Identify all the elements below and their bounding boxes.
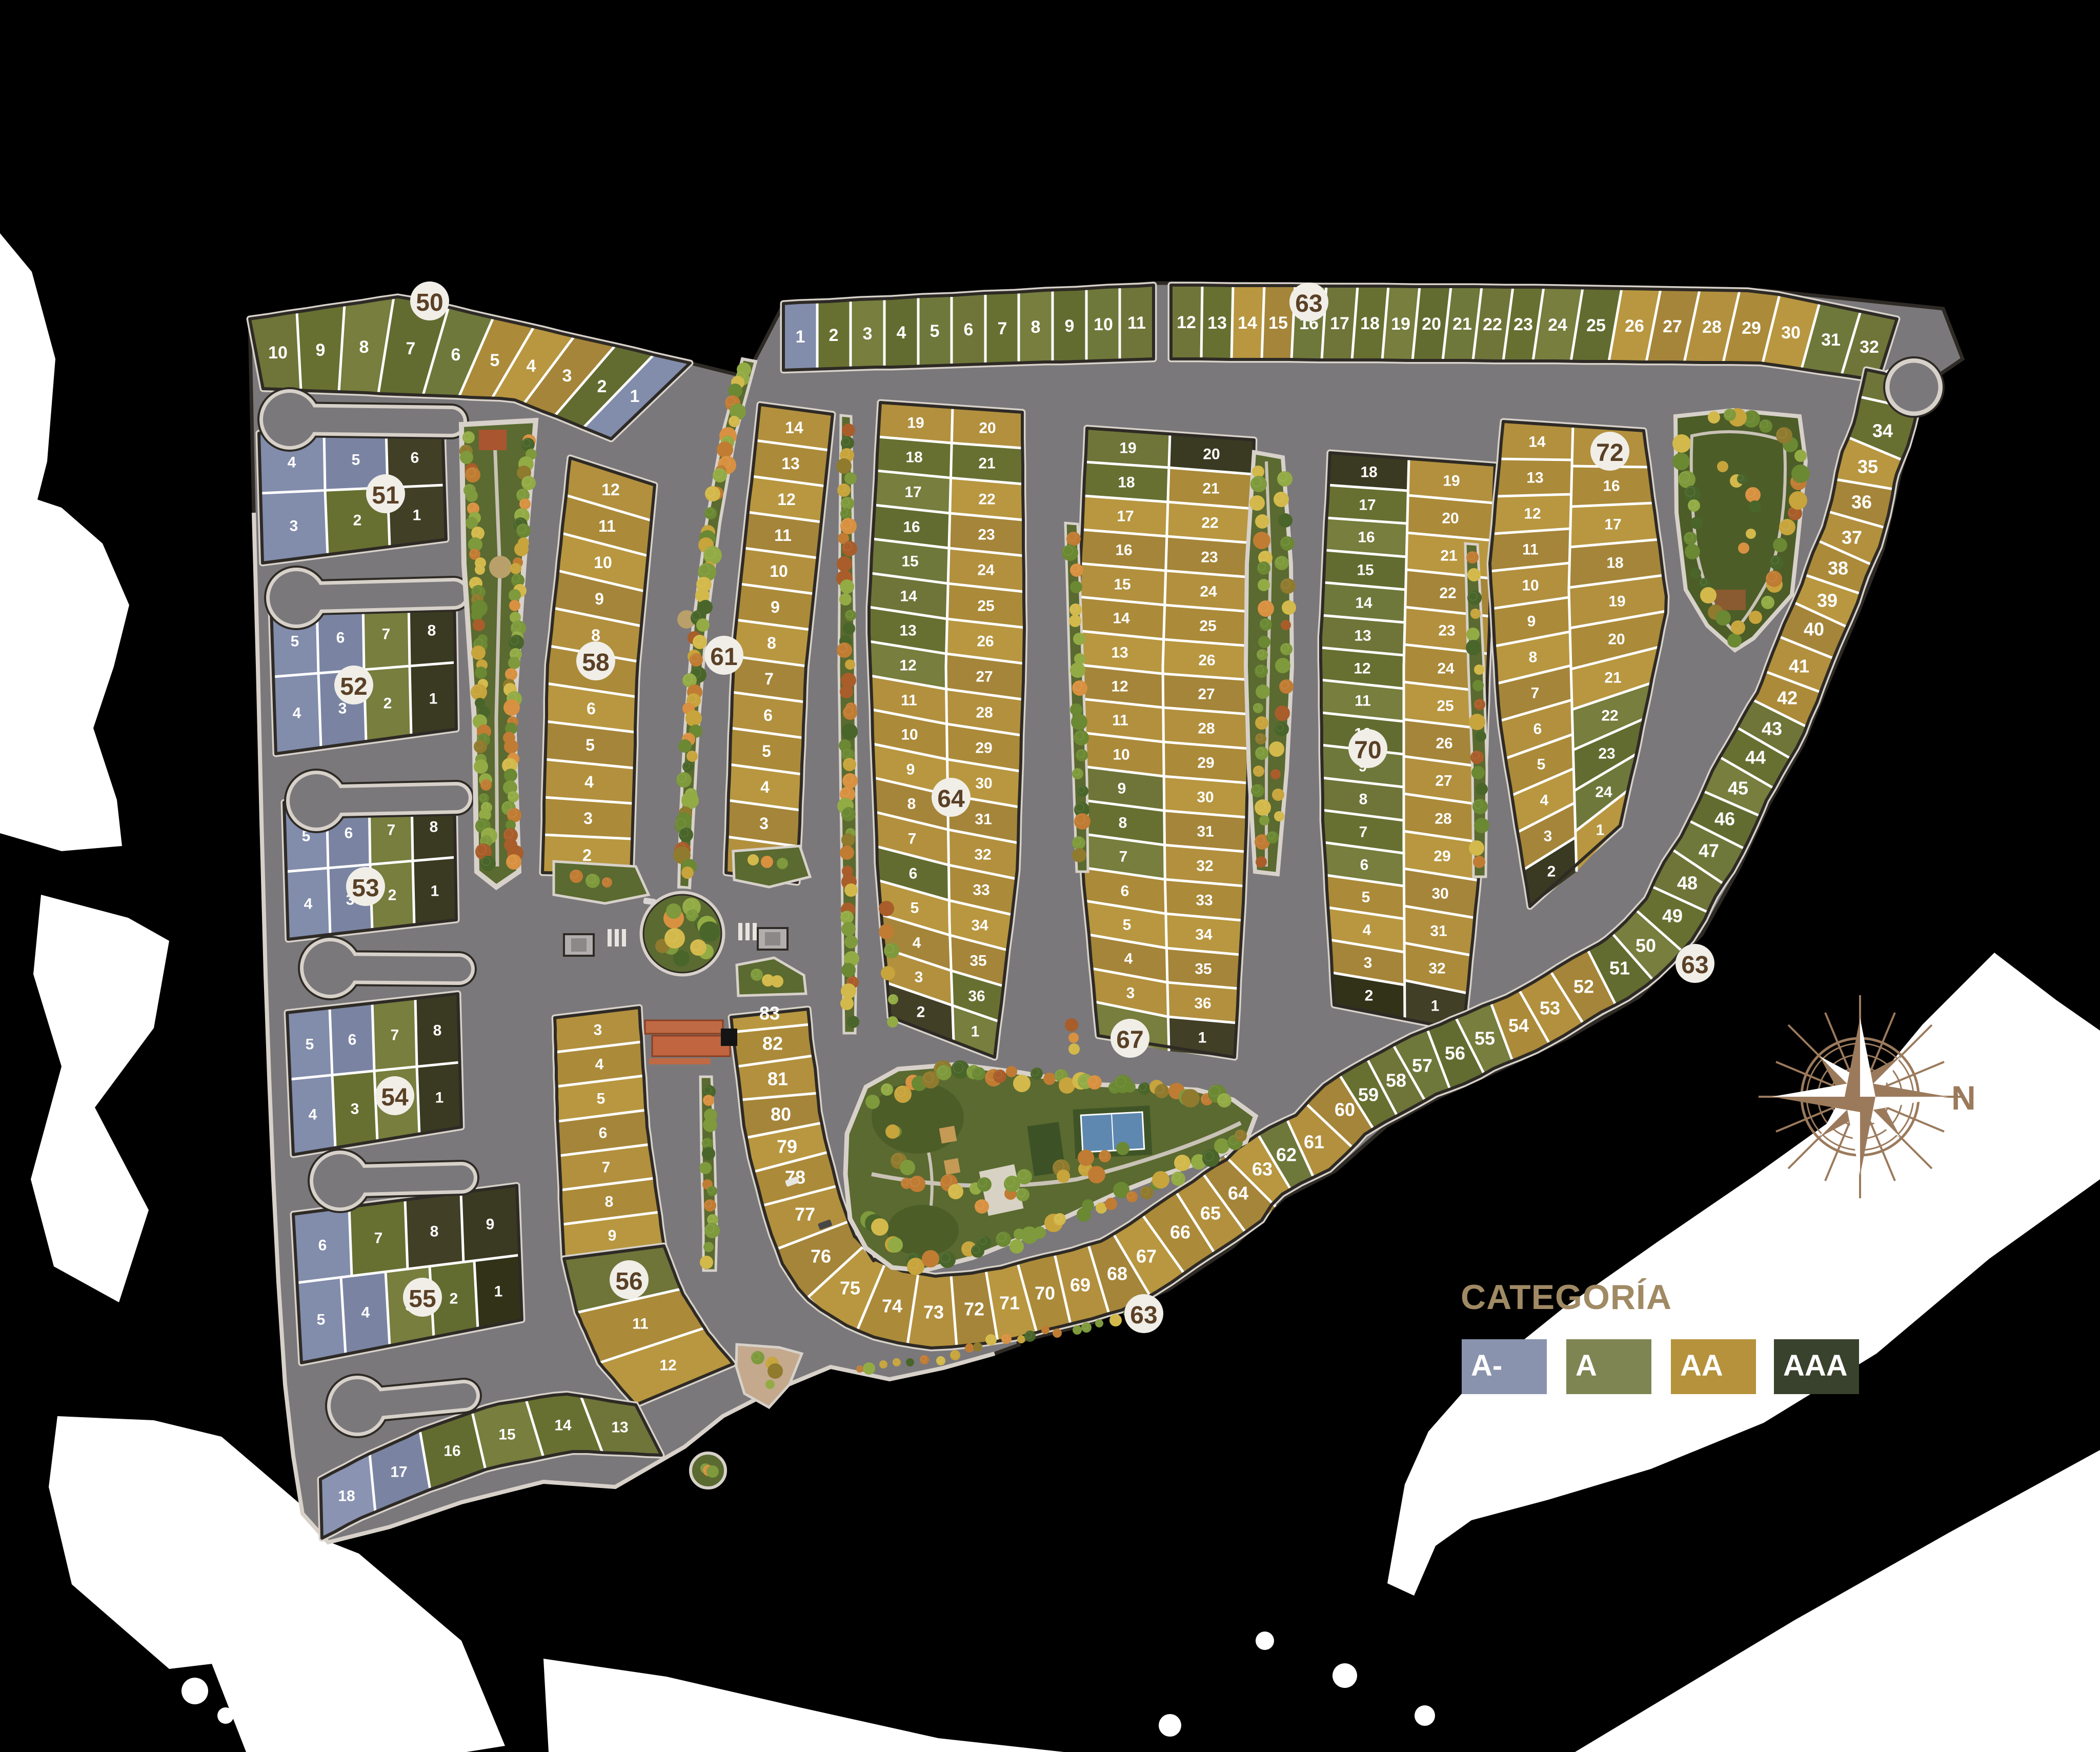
svg-text:6: 6 [587, 699, 596, 718]
svg-text:3: 3 [759, 814, 769, 833]
svg-text:5: 5 [585, 736, 595, 754]
svg-text:8: 8 [433, 1022, 442, 1039]
svg-text:29: 29 [1742, 318, 1761, 338]
svg-text:12: 12 [659, 1357, 676, 1374]
svg-text:9: 9 [1527, 613, 1536, 630]
svg-text:42: 42 [1777, 688, 1798, 709]
svg-text:N: N [1951, 1079, 1976, 1117]
svg-text:3: 3 [583, 809, 593, 828]
svg-text:22: 22 [978, 491, 995, 508]
svg-text:34: 34 [971, 917, 988, 934]
svg-text:36: 36 [968, 988, 985, 1005]
svg-text:15: 15 [901, 553, 918, 570]
svg-text:5: 5 [911, 900, 919, 917]
svg-text:16: 16 [1358, 529, 1375, 546]
svg-text:46: 46 [1714, 809, 1735, 830]
svg-text:3: 3 [338, 700, 347, 717]
svg-text:6: 6 [411, 450, 419, 467]
svg-text:64: 64 [1228, 1183, 1248, 1204]
svg-text:26: 26 [977, 633, 994, 650]
svg-text:21: 21 [1440, 548, 1457, 565]
svg-text:26: 26 [1198, 652, 1215, 669]
svg-text:3: 3 [1364, 955, 1372, 972]
svg-text:8: 8 [605, 1194, 614, 1211]
svg-text:22: 22 [1439, 585, 1456, 602]
svg-text:67: 67 [1116, 1026, 1143, 1054]
svg-text:29: 29 [1197, 755, 1214, 772]
svg-text:4: 4 [1124, 951, 1133, 968]
svg-text:11: 11 [632, 1316, 649, 1333]
svg-text:34: 34 [1872, 420, 1893, 441]
svg-text:14: 14 [1355, 595, 1372, 612]
svg-text:10: 10 [594, 553, 612, 572]
svg-text:1: 1 [429, 691, 438, 708]
svg-text:19: 19 [1443, 473, 1460, 490]
svg-text:63: 63 [1252, 1159, 1273, 1180]
svg-text:13: 13 [611, 1419, 628, 1436]
svg-text:12: 12 [1524, 506, 1541, 522]
svg-text:3: 3 [594, 1022, 602, 1039]
svg-text:15: 15 [1114, 576, 1130, 593]
svg-text:28: 28 [1435, 811, 1451, 828]
svg-text:56: 56 [1445, 1043, 1465, 1064]
svg-text:7: 7 [374, 1230, 383, 1247]
svg-text:4: 4 [361, 1304, 370, 1321]
svg-text:7: 7 [382, 626, 391, 643]
svg-text:A-: A- [1471, 1349, 1502, 1382]
svg-text:1: 1 [413, 507, 421, 524]
svg-text:7: 7 [1119, 849, 1128, 865]
svg-text:8: 8 [428, 622, 436, 639]
svg-text:10: 10 [770, 562, 788, 580]
svg-text:18: 18 [1360, 314, 1380, 333]
svg-text:25: 25 [1586, 316, 1606, 335]
svg-text:12: 12 [601, 480, 620, 499]
svg-text:32: 32 [1196, 858, 1213, 875]
svg-text:74: 74 [882, 1296, 902, 1317]
svg-text:30: 30 [975, 775, 992, 792]
svg-text:49: 49 [1662, 905, 1683, 927]
svg-text:33: 33 [1196, 892, 1213, 909]
svg-text:58: 58 [582, 649, 609, 676]
svg-text:23: 23 [1513, 315, 1533, 334]
svg-text:53: 53 [1540, 998, 1560, 1019]
svg-text:11: 11 [598, 517, 616, 535]
svg-text:5: 5 [1362, 889, 1370, 906]
svg-text:25: 25 [977, 598, 994, 615]
svg-text:2: 2 [450, 1291, 458, 1307]
svg-text:25: 25 [1437, 698, 1453, 715]
svg-text:5: 5 [306, 1036, 314, 1053]
svg-text:35: 35 [1857, 456, 1878, 477]
svg-text:6: 6 [599, 1125, 608, 1142]
svg-text:21: 21 [1604, 670, 1621, 687]
svg-text:31: 31 [1821, 330, 1841, 350]
svg-text:5: 5 [762, 742, 771, 760]
svg-text:16: 16 [903, 519, 920, 536]
svg-text:6: 6 [336, 630, 345, 647]
svg-text:8: 8 [1119, 815, 1127, 832]
svg-text:9: 9 [595, 590, 604, 608]
svg-text:30: 30 [1781, 323, 1801, 343]
svg-text:48: 48 [1677, 873, 1698, 894]
svg-text:10: 10 [1522, 577, 1539, 594]
svg-text:54: 54 [381, 1084, 409, 1111]
svg-text:1: 1 [630, 387, 640, 406]
svg-text:14: 14 [554, 1417, 572, 1434]
svg-text:3: 3 [1544, 828, 1552, 845]
svg-text:24: 24 [1200, 583, 1217, 600]
svg-text:4: 4 [293, 705, 301, 722]
svg-text:18: 18 [905, 449, 922, 466]
svg-text:11: 11 [901, 692, 917, 709]
svg-text:9: 9 [1065, 316, 1075, 336]
svg-text:21: 21 [1202, 480, 1219, 497]
svg-text:5: 5 [597, 1091, 605, 1107]
svg-text:4: 4 [595, 1056, 604, 1073]
svg-text:5: 5 [930, 321, 940, 341]
svg-text:28: 28 [976, 704, 993, 721]
svg-text:8: 8 [430, 819, 438, 836]
svg-text:1: 1 [971, 1023, 980, 1040]
svg-text:2: 2 [388, 887, 397, 904]
svg-text:10: 10 [1094, 315, 1113, 334]
svg-text:29: 29 [975, 740, 992, 757]
svg-text:6: 6 [1533, 721, 1542, 738]
svg-text:2: 2 [829, 326, 839, 345]
svg-text:18: 18 [338, 1488, 355, 1505]
svg-text:65: 65 [1200, 1203, 1221, 1224]
svg-text:57: 57 [1412, 1055, 1432, 1076]
svg-text:18: 18 [1606, 555, 1623, 572]
svg-text:7: 7 [602, 1159, 611, 1176]
svg-text:4: 4 [897, 323, 906, 343]
svg-text:30: 30 [1197, 789, 1214, 806]
svg-text:20: 20 [979, 420, 996, 437]
svg-text:5: 5 [291, 633, 299, 650]
svg-text:14: 14 [785, 418, 803, 437]
svg-text:17: 17 [1604, 516, 1621, 533]
svg-text:55: 55 [1475, 1028, 1495, 1049]
svg-text:13: 13 [1111, 645, 1128, 661]
svg-text:38: 38 [1828, 558, 1848, 579]
svg-text:11: 11 [1127, 313, 1146, 333]
svg-text:13: 13 [781, 454, 800, 473]
svg-text:70: 70 [1035, 1283, 1055, 1304]
svg-text:11: 11 [774, 526, 792, 545]
svg-text:44: 44 [1745, 747, 1766, 768]
svg-text:14: 14 [1238, 313, 1257, 333]
svg-text:2: 2 [1365, 988, 1374, 1004]
svg-text:25: 25 [1199, 618, 1216, 635]
svg-text:20: 20 [1442, 510, 1459, 527]
svg-text:12: 12 [777, 490, 796, 509]
svg-text:17: 17 [1117, 508, 1134, 525]
svg-text:18: 18 [1360, 464, 1377, 481]
svg-text:63: 63 [1681, 952, 1708, 979]
svg-text:12: 12 [899, 657, 916, 674]
svg-text:7: 7 [1531, 685, 1540, 702]
svg-text:11: 11 [1522, 541, 1539, 558]
svg-text:3: 3 [915, 969, 923, 986]
svg-text:11: 11 [1355, 693, 1371, 710]
svg-text:7: 7 [391, 1027, 399, 1044]
svg-text:60: 60 [1335, 1099, 1355, 1120]
svg-text:31: 31 [1197, 823, 1214, 840]
svg-text:1: 1 [1596, 822, 1605, 839]
svg-text:51: 51 [1609, 958, 1630, 979]
svg-text:13: 13 [1354, 628, 1371, 645]
svg-text:22: 22 [1483, 315, 1502, 334]
svg-text:27: 27 [976, 669, 993, 686]
svg-text:27: 27 [1198, 686, 1215, 703]
svg-text:8: 8 [1529, 649, 1538, 666]
svg-text:16: 16 [1115, 542, 1132, 559]
svg-text:39: 39 [1817, 590, 1837, 611]
svg-text:CATEGORÍA: CATEGORÍA [1461, 1278, 1672, 1317]
svg-text:17: 17 [1330, 314, 1349, 333]
svg-text:13: 13 [1526, 470, 1543, 487]
svg-text:19: 19 [1119, 440, 1136, 457]
svg-text:80: 80 [771, 1104, 791, 1125]
svg-text:66: 66 [1170, 1222, 1190, 1243]
svg-text:79: 79 [777, 1136, 797, 1157]
svg-text:17: 17 [390, 1464, 407, 1481]
svg-text:5: 5 [1537, 756, 1546, 773]
svg-text:24: 24 [1595, 784, 1612, 801]
svg-text:6: 6 [763, 706, 773, 724]
svg-text:1: 1 [494, 1283, 503, 1300]
svg-text:8: 8 [1031, 317, 1041, 337]
svg-text:16: 16 [1603, 478, 1620, 495]
svg-text:75: 75 [840, 1278, 860, 1299]
svg-text:3: 3 [562, 366, 572, 386]
svg-text:35: 35 [970, 953, 986, 970]
svg-text:3: 3 [863, 324, 873, 344]
svg-text:47: 47 [1699, 840, 1719, 861]
svg-text:67: 67 [1136, 1246, 1157, 1267]
svg-text:34: 34 [1195, 927, 1213, 943]
svg-text:9: 9 [608, 1227, 617, 1244]
svg-text:2: 2 [383, 695, 392, 712]
svg-text:23: 23 [1201, 549, 1218, 566]
svg-text:8: 8 [359, 337, 369, 357]
svg-text:6: 6 [1360, 857, 1369, 874]
svg-text:28: 28 [1198, 720, 1215, 737]
svg-text:52: 52 [340, 673, 367, 700]
svg-text:27: 27 [1663, 317, 1682, 336]
svg-text:5: 5 [352, 452, 360, 469]
svg-text:72: 72 [964, 1299, 984, 1320]
svg-text:50: 50 [1635, 935, 1656, 956]
svg-text:83: 83 [759, 1003, 780, 1024]
svg-text:29: 29 [1433, 848, 1450, 865]
svg-text:59: 59 [1358, 1084, 1379, 1105]
svg-text:37: 37 [1842, 527, 1862, 548]
svg-text:6: 6 [964, 320, 974, 339]
svg-text:71: 71 [999, 1293, 1020, 1314]
svg-text:55: 55 [409, 1285, 436, 1313]
svg-text:7: 7 [908, 831, 917, 848]
svg-text:AAA: AAA [1783, 1349, 1848, 1382]
svg-text:45: 45 [1728, 778, 1748, 799]
svg-text:8: 8 [907, 796, 916, 813]
svg-text:14: 14 [900, 588, 917, 605]
svg-text:6: 6 [451, 345, 461, 365]
svg-text:77: 77 [795, 1204, 815, 1225]
svg-text:15: 15 [498, 1426, 515, 1443]
svg-text:1: 1 [796, 327, 805, 347]
svg-text:26: 26 [1436, 735, 1452, 752]
svg-text:54: 54 [1508, 1015, 1529, 1036]
svg-text:61: 61 [710, 643, 737, 671]
svg-text:3: 3 [351, 1101, 359, 1118]
svg-text:4: 4 [913, 935, 921, 952]
svg-text:12: 12 [1111, 678, 1128, 695]
svg-text:58: 58 [1386, 1070, 1406, 1091]
svg-text:23: 23 [1598, 746, 1615, 762]
svg-text:50: 50 [416, 289, 443, 316]
svg-text:9: 9 [486, 1216, 495, 1233]
svg-text:13: 13 [1207, 313, 1227, 333]
svg-text:4: 4 [309, 1106, 317, 1123]
svg-text:19: 19 [1391, 314, 1410, 334]
svg-text:6: 6 [345, 825, 353, 842]
svg-text:62: 62 [1276, 1144, 1297, 1165]
svg-text:11: 11 [1112, 712, 1128, 729]
svg-text:24: 24 [1437, 660, 1455, 677]
svg-text:2: 2 [353, 512, 362, 529]
svg-text:4: 4 [288, 454, 296, 471]
svg-text:17: 17 [1359, 497, 1376, 514]
svg-text:51: 51 [372, 482, 399, 509]
svg-text:43: 43 [1762, 718, 1782, 739]
svg-text:2: 2 [582, 846, 592, 864]
svg-text:32: 32 [974, 847, 991, 863]
svg-text:10: 10 [268, 343, 288, 363]
svg-text:23: 23 [1438, 622, 1455, 639]
svg-text:1: 1 [435, 1090, 444, 1106]
svg-text:4: 4 [1363, 922, 1371, 939]
svg-text:21: 21 [978, 455, 995, 472]
svg-text:5: 5 [1123, 917, 1132, 934]
svg-text:16: 16 [443, 1443, 460, 1460]
svg-text:6: 6 [1121, 883, 1129, 900]
svg-text:20: 20 [1608, 631, 1625, 648]
svg-text:7: 7 [998, 319, 1007, 338]
svg-text:19: 19 [907, 415, 924, 432]
svg-text:36: 36 [1851, 492, 1872, 513]
svg-text:41: 41 [1789, 656, 1809, 677]
svg-text:7: 7 [1359, 824, 1368, 841]
svg-text:2: 2 [917, 1004, 925, 1021]
svg-text:7: 7 [764, 670, 774, 688]
svg-text:7: 7 [387, 822, 396, 839]
svg-text:4: 4 [760, 778, 770, 796]
svg-text:4: 4 [527, 356, 536, 376]
svg-text:3: 3 [290, 518, 298, 535]
svg-text:6: 6 [909, 865, 918, 882]
svg-text:9: 9 [906, 761, 915, 778]
svg-text:13: 13 [899, 622, 916, 639]
svg-text:14: 14 [1113, 610, 1130, 627]
svg-text:12: 12 [1354, 660, 1370, 677]
svg-text:32: 32 [1428, 960, 1445, 977]
svg-text:32: 32 [1860, 337, 1879, 357]
svg-text:81: 81 [768, 1069, 788, 1090]
svg-text:2: 2 [1547, 863, 1556, 880]
svg-text:1: 1 [1431, 998, 1440, 1015]
svg-text:35: 35 [1195, 961, 1211, 978]
svg-text:6: 6 [318, 1237, 327, 1254]
svg-text:33: 33 [973, 882, 990, 899]
svg-text:17: 17 [904, 484, 921, 501]
svg-text:73: 73 [923, 1302, 944, 1323]
svg-text:3: 3 [1126, 985, 1135, 1002]
svg-text:12: 12 [1177, 313, 1196, 332]
svg-text:19: 19 [1608, 593, 1625, 610]
svg-text:28: 28 [1702, 317, 1722, 337]
svg-text:14: 14 [1528, 434, 1546, 451]
svg-text:9: 9 [771, 598, 780, 616]
svg-text:76: 76 [811, 1246, 831, 1267]
svg-text:22: 22 [1601, 708, 1618, 724]
svg-text:24: 24 [1548, 315, 1567, 335]
svg-text:21: 21 [1452, 314, 1472, 334]
svg-text:40: 40 [1804, 619, 1824, 640]
svg-text:31: 31 [1430, 923, 1447, 940]
svg-text:20: 20 [1422, 314, 1441, 334]
svg-text:61: 61 [1304, 1132, 1324, 1153]
svg-text:4: 4 [584, 773, 594, 791]
svg-text:52: 52 [1573, 976, 1594, 997]
svg-text:6: 6 [348, 1032, 357, 1049]
svg-text:7: 7 [406, 339, 416, 358]
svg-text:5: 5 [317, 1312, 326, 1328]
svg-text:10: 10 [901, 727, 918, 743]
svg-text:72: 72 [1596, 439, 1623, 467]
svg-text:63: 63 [1130, 1302, 1157, 1329]
svg-text:8: 8 [767, 634, 776, 652]
svg-text:18: 18 [1118, 474, 1135, 491]
svg-text:53: 53 [352, 875, 379, 902]
svg-text:31: 31 [975, 811, 992, 828]
svg-text:9: 9 [1118, 780, 1126, 797]
svg-text:A: A [1576, 1349, 1597, 1382]
svg-text:9: 9 [316, 340, 326, 360]
svg-text:2: 2 [597, 377, 607, 396]
svg-text:36: 36 [1194, 995, 1211, 1012]
svg-text:1: 1 [431, 883, 439, 900]
svg-text:15: 15 [1357, 562, 1374, 579]
svg-text:1: 1 [1198, 1030, 1207, 1046]
svg-text:20: 20 [1203, 446, 1220, 463]
svg-text:8: 8 [1359, 791, 1368, 808]
svg-text:22: 22 [1201, 515, 1218, 532]
svg-text:68: 68 [1107, 1263, 1127, 1284]
svg-text:64: 64 [937, 786, 965, 813]
svg-text:4: 4 [304, 896, 313, 913]
svg-text:23: 23 [978, 527, 995, 543]
svg-text:70: 70 [1354, 737, 1381, 764]
svg-text:26: 26 [1625, 316, 1644, 336]
svg-text:27: 27 [1435, 773, 1452, 790]
svg-text:AA: AA [1680, 1349, 1723, 1382]
svg-text:82: 82 [762, 1033, 783, 1054]
svg-text:69: 69 [1070, 1275, 1091, 1296]
svg-text:30: 30 [1431, 885, 1448, 902]
svg-text:4: 4 [1540, 792, 1549, 809]
